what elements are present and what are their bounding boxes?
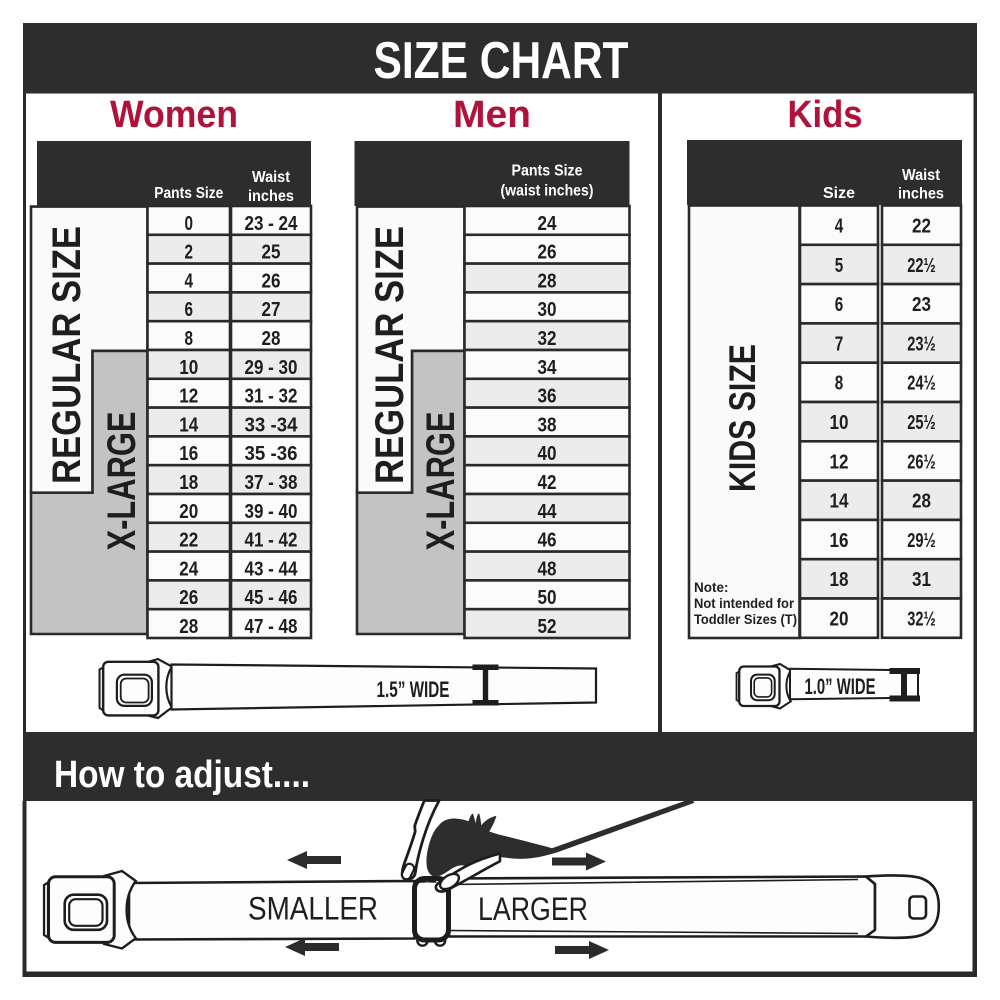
svg-text:33 -34: 33 -34 (245, 413, 299, 436)
svg-text:Pants Size: Pants Size (512, 163, 583, 180)
svg-text:8: 8 (185, 327, 194, 350)
svg-text:27: 27 (262, 298, 281, 321)
svg-text:24½: 24½ (907, 372, 936, 395)
svg-text:29 - 30: 29 - 30 (245, 356, 298, 379)
svg-text:20: 20 (830, 608, 849, 631)
svg-text:KIDS SIZE: KIDS SIZE (722, 344, 763, 492)
svg-text:45 - 46: 45 - 46 (245, 586, 298, 609)
svg-text:40: 40 (538, 442, 557, 465)
svg-text:6: 6 (835, 293, 844, 316)
svg-text:Men: Men (453, 94, 531, 136)
svg-text:28: 28 (538, 269, 557, 292)
svg-text:X-LARGE: X-LARGE (419, 412, 463, 551)
svg-text:23½: 23½ (907, 332, 936, 355)
svg-text:26: 26 (538, 241, 557, 264)
svg-text:inches: inches (248, 188, 294, 205)
svg-text:inches: inches (898, 186, 944, 203)
svg-text:REGULAR SIZE: REGULAR SIZE (45, 226, 89, 484)
svg-text:34: 34 (538, 356, 557, 379)
svg-text:22: 22 (912, 215, 931, 238)
svg-text:SMALLER: SMALLER (248, 891, 378, 927)
svg-text:20: 20 (179, 500, 198, 523)
svg-text:REGULAR SIZE: REGULAR SIZE (368, 226, 412, 484)
svg-text:4: 4 (185, 269, 194, 292)
svg-text:Kids: Kids (788, 94, 863, 136)
svg-text:47 - 48: 47 - 48 (245, 615, 298, 638)
svg-text:23 - 24: 23 - 24 (245, 212, 298, 235)
svg-text:Not intended for: Not intended for (694, 596, 795, 611)
svg-text:How to adjust....: How to adjust.... (54, 754, 310, 796)
svg-text:Toddler Sizes (T): Toddler Sizes (T) (694, 612, 797, 627)
svg-text:Size: Size (823, 185, 855, 202)
svg-text:26½: 26½ (907, 450, 936, 473)
svg-text:X-LARGE: X-LARGE (100, 412, 144, 551)
svg-text:18: 18 (179, 471, 198, 494)
svg-text:10: 10 (830, 411, 849, 434)
svg-text:0: 0 (185, 212, 194, 235)
svg-text:16: 16 (179, 442, 198, 465)
svg-text:30: 30 (538, 298, 557, 321)
svg-text:35 -36: 35 -36 (245, 442, 298, 465)
svg-text:16: 16 (830, 529, 849, 552)
svg-text:1.5” WIDE: 1.5” WIDE (377, 677, 450, 702)
svg-text:10: 10 (179, 356, 198, 379)
svg-text:(waist inches): (waist inches) (501, 183, 594, 200)
svg-text:Women: Women (110, 94, 238, 136)
svg-text:SIZE CHART: SIZE CHART (374, 32, 629, 90)
svg-text:LARGER: LARGER (478, 891, 588, 927)
svg-text:43 - 44: 43 - 44 (245, 557, 298, 580)
svg-text:12: 12 (830, 450, 849, 473)
svg-text:28: 28 (912, 490, 931, 513)
svg-text:14: 14 (830, 490, 849, 513)
svg-text:8: 8 (835, 372, 844, 395)
svg-text:1.0” WIDE: 1.0” WIDE (805, 674, 876, 699)
svg-text:50: 50 (538, 586, 557, 609)
svg-text:22: 22 (179, 529, 198, 552)
svg-text:24: 24 (538, 212, 557, 235)
svg-text:2: 2 (185, 241, 194, 264)
svg-text:39 - 40: 39 - 40 (245, 500, 298, 523)
svg-text:31: 31 (912, 568, 931, 591)
svg-text:41 - 42: 41 - 42 (245, 529, 298, 552)
svg-text:32½: 32½ (907, 608, 936, 631)
svg-text:23: 23 (912, 293, 931, 316)
svg-text:48: 48 (538, 557, 557, 580)
svg-text:Waist: Waist (902, 167, 941, 184)
svg-text:29½: 29½ (907, 529, 936, 552)
svg-text:Note:: Note: (694, 580, 729, 595)
svg-text:26: 26 (179, 586, 198, 609)
svg-text:25: 25 (262, 241, 281, 264)
svg-text:18: 18 (830, 568, 849, 591)
svg-text:12: 12 (179, 385, 198, 408)
svg-text:7: 7 (835, 332, 844, 355)
svg-text:24: 24 (179, 557, 198, 580)
svg-text:26: 26 (262, 269, 281, 292)
svg-text:4: 4 (835, 215, 844, 238)
svg-text:52: 52 (538, 615, 557, 638)
svg-text:31 - 32: 31 - 32 (245, 385, 298, 408)
svg-text:44: 44 (538, 500, 557, 523)
svg-text:42: 42 (538, 471, 557, 494)
svg-text:14: 14 (179, 413, 198, 436)
svg-text:36: 36 (538, 385, 557, 408)
svg-text:Pants Size: Pants Size (154, 185, 223, 202)
svg-text:46: 46 (538, 529, 557, 552)
svg-text:28: 28 (262, 327, 281, 350)
svg-text:Waist: Waist (252, 169, 291, 186)
svg-text:5: 5 (835, 254, 844, 277)
svg-text:28: 28 (179, 615, 198, 638)
svg-text:6: 6 (185, 298, 194, 321)
svg-text:25½: 25½ (907, 411, 936, 434)
svg-text:37 - 38: 37 - 38 (245, 471, 298, 494)
svg-text:38: 38 (538, 413, 557, 436)
svg-text:22½: 22½ (907, 254, 936, 277)
svg-text:32: 32 (538, 327, 557, 350)
